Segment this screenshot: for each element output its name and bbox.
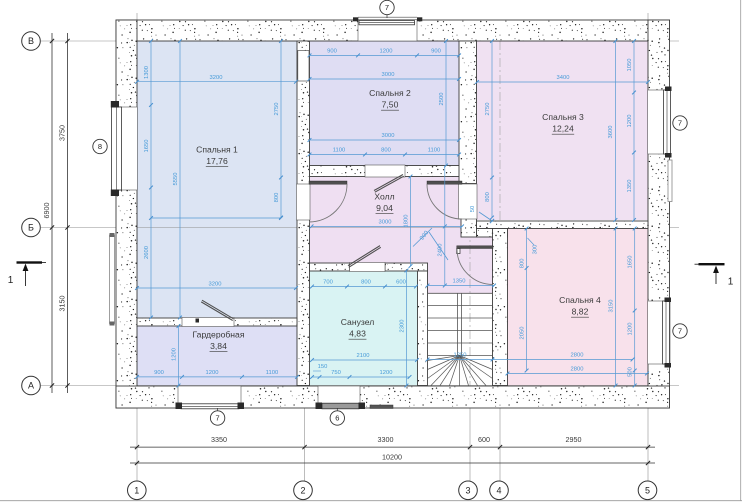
svg-text:1200: 1200 bbox=[171, 348, 177, 361]
svg-text:2500: 2500 bbox=[439, 93, 445, 106]
svg-text:3150: 3150 bbox=[608, 300, 614, 313]
svg-text:1100: 1100 bbox=[266, 370, 278, 376]
svg-text:500: 500 bbox=[628, 367, 634, 377]
svg-text:Спальня 3: Спальня 3 bbox=[542, 112, 584, 122]
svg-text:6: 6 bbox=[335, 414, 339, 423]
svg-text:Спальня 1: Спальня 1 bbox=[196, 145, 238, 155]
svg-text:1200: 1200 bbox=[627, 115, 633, 128]
svg-text:900: 900 bbox=[154, 370, 164, 376]
svg-text:5: 5 bbox=[645, 486, 650, 496]
svg-text:10200: 10200 bbox=[382, 453, 402, 462]
svg-text:А: А bbox=[28, 381, 34, 391]
svg-text:В: В bbox=[28, 36, 34, 46]
svg-text:3000: 3000 bbox=[382, 72, 395, 78]
svg-text:3300: 3300 bbox=[378, 435, 394, 444]
svg-text:50: 50 bbox=[470, 206, 476, 212]
svg-text:7,50: 7,50 bbox=[382, 100, 399, 110]
svg-text:3,84: 3,84 bbox=[210, 341, 227, 351]
svg-text:1650: 1650 bbox=[628, 256, 634, 269]
svg-text:1200: 1200 bbox=[380, 370, 393, 376]
svg-text:8,82: 8,82 bbox=[572, 307, 589, 317]
svg-text:800: 800 bbox=[485, 192, 491, 202]
svg-text:800: 800 bbox=[381, 148, 391, 154]
svg-text:3600: 3600 bbox=[608, 126, 614, 139]
svg-text:900: 900 bbox=[431, 49, 441, 55]
svg-text:7: 7 bbox=[216, 414, 220, 423]
svg-text:3150: 3150 bbox=[58, 296, 67, 312]
svg-text:2750: 2750 bbox=[485, 103, 491, 116]
svg-text:1: 1 bbox=[728, 277, 734, 288]
svg-text:800: 800 bbox=[520, 259, 526, 269]
svg-text:1100: 1100 bbox=[428, 148, 440, 154]
svg-text:1350: 1350 bbox=[627, 180, 633, 193]
svg-text:2950: 2950 bbox=[566, 435, 582, 444]
svg-text:1200: 1200 bbox=[628, 323, 634, 336]
svg-text:3: 3 bbox=[465, 486, 470, 496]
svg-text:1200: 1200 bbox=[380, 49, 393, 55]
svg-text:3200: 3200 bbox=[209, 282, 222, 288]
svg-text:2800: 2800 bbox=[571, 367, 584, 373]
svg-text:Спальня 4: Спальня 4 bbox=[559, 295, 601, 305]
svg-text:7: 7 bbox=[678, 119, 682, 128]
svg-text:Холл: Холл bbox=[374, 192, 394, 202]
svg-text:700: 700 bbox=[323, 280, 333, 286]
svg-text:2750: 2750 bbox=[274, 103, 280, 116]
svg-text:4,83: 4,83 bbox=[349, 329, 366, 339]
svg-text:800: 800 bbox=[361, 280, 371, 286]
svg-text:1250: 1250 bbox=[454, 353, 467, 359]
svg-text:5550: 5550 bbox=[173, 173, 179, 186]
svg-text:Б: Б bbox=[28, 223, 34, 233]
svg-text:2800: 2800 bbox=[571, 353, 584, 359]
svg-text:Санузел: Санузел bbox=[341, 317, 374, 327]
svg-text:1050: 1050 bbox=[627, 59, 633, 72]
svg-text:3350: 3350 bbox=[211, 435, 227, 444]
svg-text:6900: 6900 bbox=[42, 203, 51, 219]
svg-text:4: 4 bbox=[496, 486, 501, 496]
svg-text:150: 150 bbox=[318, 364, 328, 370]
svg-text:1200: 1200 bbox=[206, 370, 219, 376]
svg-text:2: 2 bbox=[300, 486, 305, 496]
svg-text:1: 1 bbox=[8, 275, 14, 286]
svg-text:1350: 1350 bbox=[453, 279, 466, 285]
svg-text:9,04: 9,04 bbox=[376, 203, 393, 213]
svg-text:600: 600 bbox=[478, 435, 490, 444]
svg-text:7: 7 bbox=[385, 3, 389, 12]
svg-text:3000: 3000 bbox=[379, 220, 392, 226]
svg-text:17,76: 17,76 bbox=[206, 156, 228, 166]
svg-text:2600: 2600 bbox=[144, 246, 150, 259]
svg-text:2100: 2100 bbox=[357, 353, 370, 359]
svg-text:7: 7 bbox=[678, 327, 682, 336]
svg-text:1: 1 bbox=[134, 486, 139, 496]
svg-text:Спальня 2: Спальня 2 bbox=[369, 88, 411, 98]
svg-text:900: 900 bbox=[327, 49, 337, 55]
svg-text:600: 600 bbox=[396, 280, 406, 286]
svg-text:750: 750 bbox=[331, 370, 341, 376]
svg-text:1300: 1300 bbox=[144, 66, 150, 79]
svg-text:3200: 3200 bbox=[210, 75, 223, 81]
svg-text:3000: 3000 bbox=[382, 133, 395, 139]
svg-text:300: 300 bbox=[533, 245, 539, 255]
svg-text:2300: 2300 bbox=[399, 320, 405, 333]
svg-text:3400: 3400 bbox=[557, 75, 570, 81]
svg-text:1800: 1800 bbox=[403, 215, 409, 228]
svg-text:2050: 2050 bbox=[520, 327, 526, 340]
svg-text:1100: 1100 bbox=[333, 148, 345, 154]
svg-text:3750: 3750 bbox=[58, 125, 67, 141]
svg-text:12,24: 12,24 bbox=[552, 124, 574, 134]
svg-text:8: 8 bbox=[98, 142, 102, 151]
svg-text:Гардеробная: Гардеробная bbox=[193, 330, 245, 340]
svg-text:1650: 1650 bbox=[144, 140, 150, 153]
svg-text:800: 800 bbox=[274, 193, 280, 203]
